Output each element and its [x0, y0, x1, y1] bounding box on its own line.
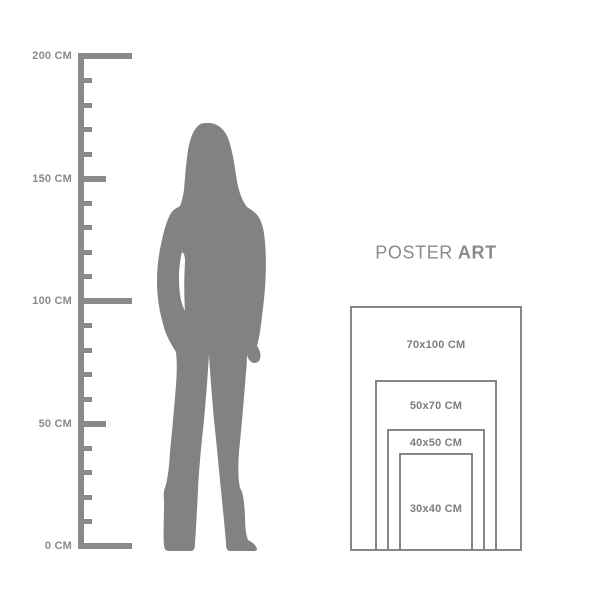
poster-size-label-40x50: 40x50 CM [410, 437, 462, 449]
poster-brand-title: POSTERART [375, 243, 496, 264]
woman-silhouette-shape [157, 123, 266, 551]
poster-title-bold: ART [458, 243, 497, 263]
poster-title-regular: POSTER [375, 243, 453, 263]
poster-size-label-30x40: 30x40 CM [410, 503, 462, 515]
poster-size-label-50x70: 50x70 CM [410, 400, 462, 412]
poster-size-label-70x100: 70x100 CM [407, 339, 466, 351]
